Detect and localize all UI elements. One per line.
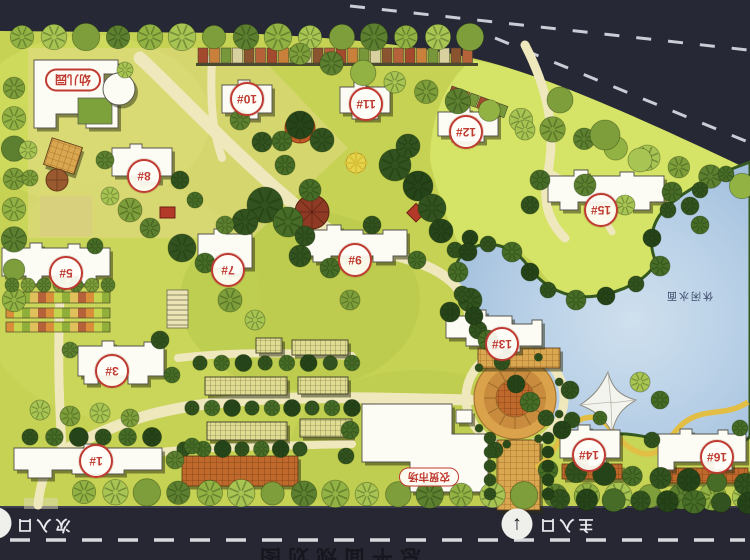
building-marker-label: 3# — [105, 365, 118, 377]
arrow-glyph: ↑ — [512, 513, 522, 536]
market-label: 农贸市场 — [399, 468, 459, 487]
building-marker-label: 5# — [59, 267, 72, 279]
arrow-glyph: ↑ — [0, 512, 1, 535]
building-marker-12: 12# — [449, 115, 483, 149]
building-marker-1: 1# — [79, 444, 113, 478]
building-marker-14: 14# — [572, 438, 606, 472]
building-marker-label: 15# — [591, 204, 611, 216]
building-marker-3: 3# — [95, 354, 129, 388]
lake-label: 休闲水面 — [665, 290, 713, 305]
building-marker-label: 9# — [348, 254, 361, 266]
building-marker-label: 13# — [492, 338, 512, 350]
building-marker-7: 7# — [211, 253, 245, 287]
building-marker-label: 8# — [137, 170, 150, 182]
building-marker-5: 5# — [49, 256, 83, 290]
building-marker-16: 16# — [700, 440, 734, 474]
building-marker-label: 11# — [356, 98, 375, 110]
building-marker-label: 14# — [579, 449, 599, 461]
building-marker-11: 11# — [349, 87, 383, 121]
building-marker-label: 1# — [89, 455, 102, 467]
building-marker-label: 16# — [707, 451, 727, 463]
building-marker-label: 7# — [221, 264, 234, 276]
building-marker-9: 9# — [338, 243, 372, 277]
site-plan-map: 1# 3# 5# 7# 8# 9# 10# 11# 12# 13# 14# 15… — [0, 0, 750, 560]
building-marker-13: 13# — [485, 327, 519, 361]
building-marker-15: 15# — [584, 193, 618, 227]
building-marker-label: 12# — [456, 126, 476, 138]
site-plan-canvas — [0, 0, 750, 560]
secondary-entrance-label: 次入口 — [13, 516, 70, 537]
building-marker-label: 10# — [237, 93, 257, 105]
partial-caption: 总平面规划图 — [253, 543, 421, 560]
building-marker-10: 10# — [230, 82, 264, 116]
kindergarten-label: 幼儿园 — [45, 69, 101, 92]
building-marker-8: 8# — [127, 159, 161, 193]
main-entrance-label: 主入口 — [536, 516, 593, 537]
main-entrance-arrow-icon: ↑ — [502, 509, 533, 540]
